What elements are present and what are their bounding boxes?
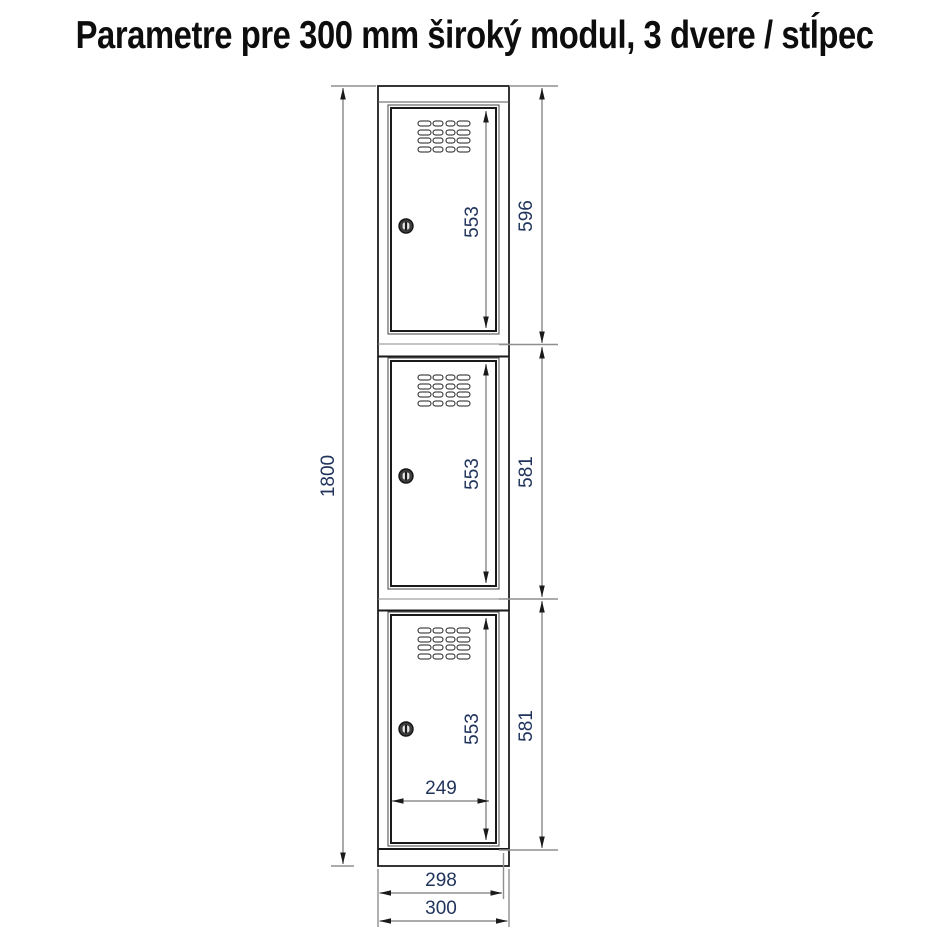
dim-label-section-middle: 581 <box>516 456 537 488</box>
technical-drawing: 553 553 553 249 1800 <box>0 0 945 945</box>
compartment-3: 553 249 <box>388 612 499 846</box>
locker-spec-diagram: Parametre pre 300 mm široký modul, 3 dve… <box>0 0 945 945</box>
dim-total-height: 1800 <box>318 86 376 866</box>
dim-label-body-width: 298 <box>425 870 457 891</box>
dim-label-door-height-2: 553 <box>462 458 483 490</box>
dim-label-door-height-1: 553 <box>462 206 483 238</box>
lock-icon <box>399 219 413 233</box>
lock-icon <box>399 722 413 736</box>
dim-label-section-bottom: 581 <box>516 710 537 742</box>
dim-label-door-height-3: 553 <box>462 713 483 745</box>
dim-label-section-top: 596 <box>516 200 537 232</box>
dim-label-inner-width: 249 <box>425 778 457 799</box>
compartment-2: 553 <box>388 358 499 589</box>
dim-label-total-height: 1800 <box>318 455 339 497</box>
dim-label-module-width: 300 <box>425 898 457 919</box>
compartment-1: 553 <box>388 105 499 334</box>
lock-icon <box>399 469 413 483</box>
